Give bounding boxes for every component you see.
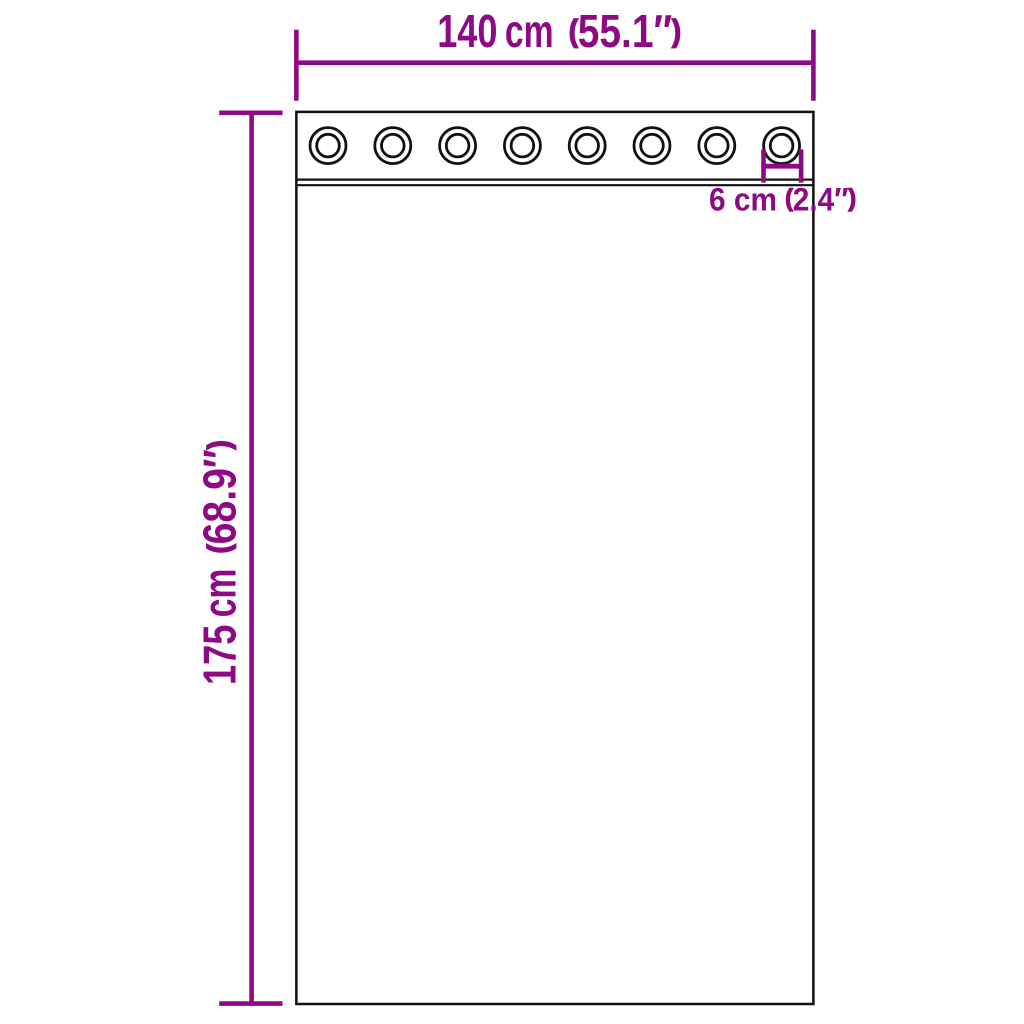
svg-text:175: 175 xyxy=(193,625,245,685)
svg-text:140: 140 xyxy=(437,5,497,57)
svg-text:(55.1″): (55.1″) xyxy=(569,5,681,57)
svg-text:cm: cm xyxy=(505,5,554,57)
svg-text:cm: cm xyxy=(193,569,245,618)
svg-text:(68.9″): (68.9″) xyxy=(193,441,245,554)
svg-text:6 cm (2.4″): 6 cm (2.4″) xyxy=(709,182,856,218)
